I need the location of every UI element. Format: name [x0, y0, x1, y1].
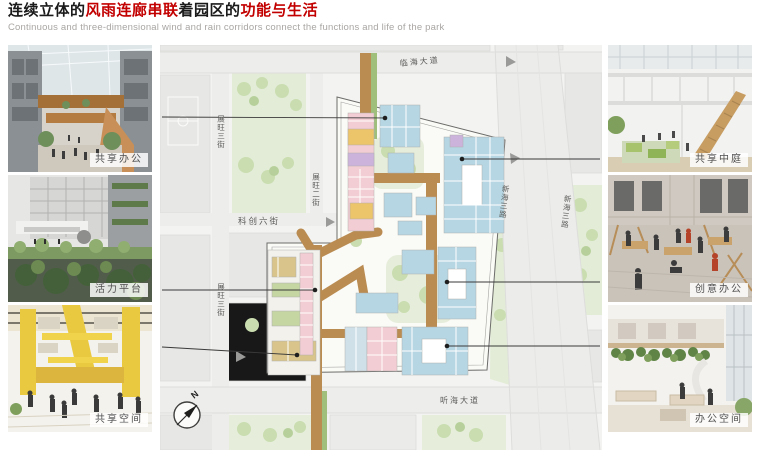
site-plan: 临海大道 听海大道 科创六街 展旺三街 展旺三街 展旺二街 新海三路 新海三路 …	[160, 45, 602, 450]
road-label-left-outer-street-1: 展旺三街	[216, 115, 225, 150]
photo-creative-office: 创意办公	[608, 175, 752, 302]
photo-label-vitality-platform: 活力平台	[90, 283, 148, 297]
road-label-left-outer-street-2: 展旺三街	[216, 283, 225, 318]
photo-shared-atrium: 共享中庭	[608, 45, 752, 172]
title-part-4: 功能与生活	[241, 2, 319, 19]
photo-label-shared-office: 共享办公	[90, 153, 148, 167]
road-label-tinghai-avenue: 听海大道	[440, 395, 480, 405]
photo-shared-space: 共享空间	[8, 305, 152, 432]
site-plan-svg: 临海大道 听海大道 科创六街 展旺三街 展旺三街 展旺二街 新海三路 新海三路 …	[160, 45, 602, 450]
title-part-3: 着园区的	[179, 2, 241, 19]
photo-label-creative-office: 创意办公	[690, 283, 748, 297]
page-subtitle: Continuous and three-dimensional wind an…	[8, 22, 752, 33]
photo-label-shared-space: 共享空间	[90, 413, 148, 427]
photo-vitality-platform: 活力平台	[8, 175, 152, 302]
photo-shared-office: 共享办公	[8, 45, 152, 172]
photo-office-space: 办公空间	[608, 305, 752, 432]
photo-label-office-space: 办公空间	[690, 413, 748, 427]
photo-label-shared-atrium: 共享中庭	[690, 153, 748, 167]
page-title: 连续立体的风雨连廊串联着园区的功能与生活	[8, 2, 752, 20]
header: 连续立体的风雨连廊串联着园区的功能与生活 Continuous and thre…	[8, 2, 752, 33]
road-label-kechuang-street: 科创六街	[238, 216, 280, 226]
title-part-1: 连续立体的	[8, 2, 86, 19]
title-part-2: 风雨连廊串联	[86, 2, 179, 19]
road-label-left-inner-street: 展旺二街	[311, 173, 320, 208]
